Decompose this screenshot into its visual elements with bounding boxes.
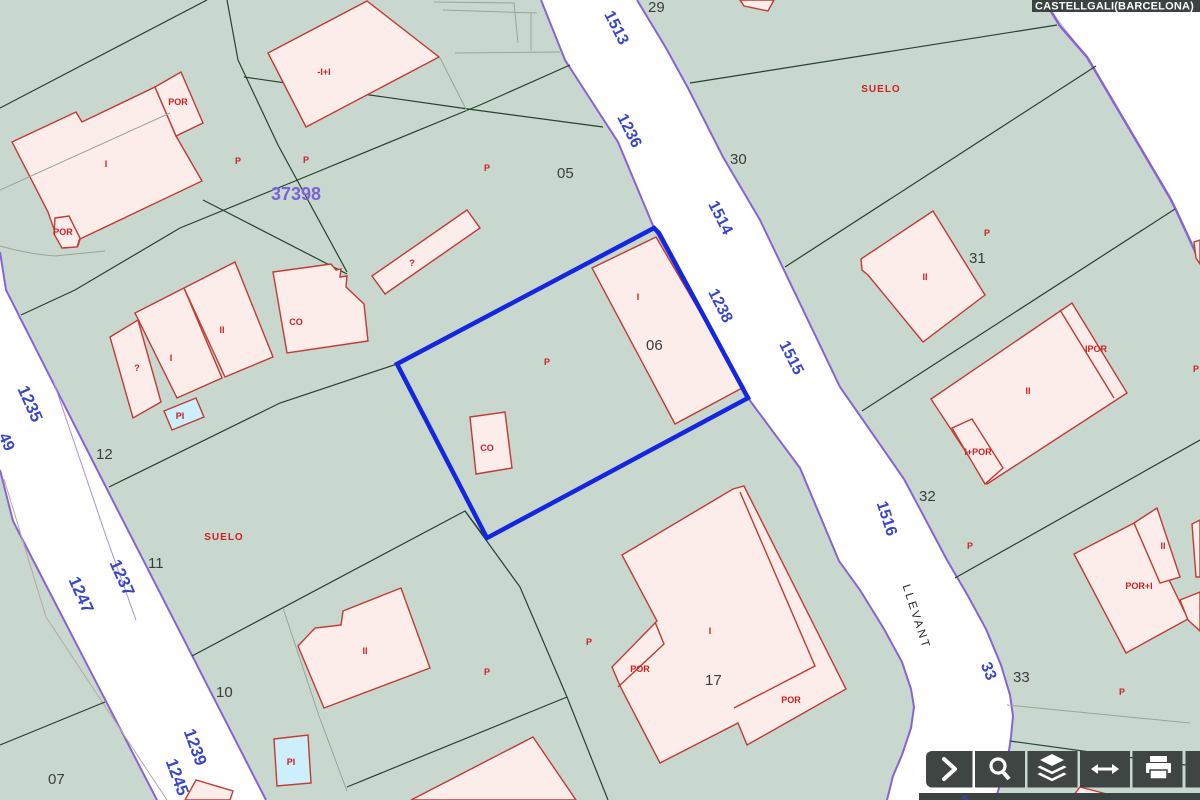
svg-text:POR: POR xyxy=(630,664,650,674)
svg-text:P: P xyxy=(1119,687,1125,697)
svg-text:P: P xyxy=(235,156,241,166)
svg-text:II: II xyxy=(362,646,367,656)
svg-text:P: P xyxy=(967,541,973,551)
svg-text:SUELO: SUELO xyxy=(861,84,900,95)
svg-text:12: 12 xyxy=(96,446,113,463)
svg-text:07: 07 xyxy=(48,771,65,788)
svg-text:CO: CO xyxy=(289,317,303,327)
svg-text:POR: POR xyxy=(53,227,73,237)
svg-text:I: I xyxy=(637,292,640,302)
svg-text:PI: PI xyxy=(287,757,296,767)
svg-text:POR: POR xyxy=(168,97,188,107)
svg-text:10: 10 xyxy=(216,684,233,701)
svg-text:17: 17 xyxy=(705,672,722,689)
svg-text:P: P xyxy=(544,357,550,367)
svg-text:32: 32 xyxy=(919,488,936,505)
svg-text:P: P xyxy=(484,667,490,677)
svg-text:P: P xyxy=(303,155,309,165)
svg-text:I: I xyxy=(105,159,108,169)
svg-text:?: ? xyxy=(409,258,415,268)
svg-text:37398: 37398 xyxy=(271,184,321,204)
svg-text:P: P xyxy=(484,163,490,173)
svg-text:CO: CO xyxy=(480,443,494,453)
svg-text:II: II xyxy=(219,325,224,335)
svg-text:11: 11 xyxy=(148,555,164,572)
svg-text:POR+I: POR+I xyxy=(1125,581,1152,591)
svg-text:I: I xyxy=(170,353,173,363)
svg-text:S: S xyxy=(962,794,968,800)
svg-text:I+POR: I+POR xyxy=(964,447,992,457)
svg-text:PI: PI xyxy=(176,411,185,421)
svg-text:P: P xyxy=(586,637,592,647)
svg-text:31: 31 xyxy=(969,250,986,267)
svg-text:06: 06 xyxy=(646,337,663,354)
svg-text:II: II xyxy=(922,272,927,282)
svg-text:IPOR: IPOR xyxy=(1085,344,1108,354)
svg-text:30: 30 xyxy=(730,151,747,168)
svg-text:II: II xyxy=(1160,541,1165,551)
svg-text:P: P xyxy=(984,228,990,238)
svg-text:29: 29 xyxy=(648,0,665,16)
svg-text:CASTELLGALI(BARCELONA): CASTELLGALI(BARCELONA) xyxy=(1035,1,1194,13)
svg-text:P: P xyxy=(1193,364,1199,374)
svg-text:SUELO: SUELO xyxy=(204,532,243,543)
svg-text:POR: POR xyxy=(781,695,801,705)
svg-text:I: I xyxy=(709,626,712,636)
svg-text:II: II xyxy=(1025,386,1030,396)
svg-text:?: ? xyxy=(134,363,140,373)
svg-text:33: 33 xyxy=(1013,669,1030,686)
svg-text:-I+I: -I+I xyxy=(317,67,330,77)
svg-text:05: 05 xyxy=(557,165,574,182)
